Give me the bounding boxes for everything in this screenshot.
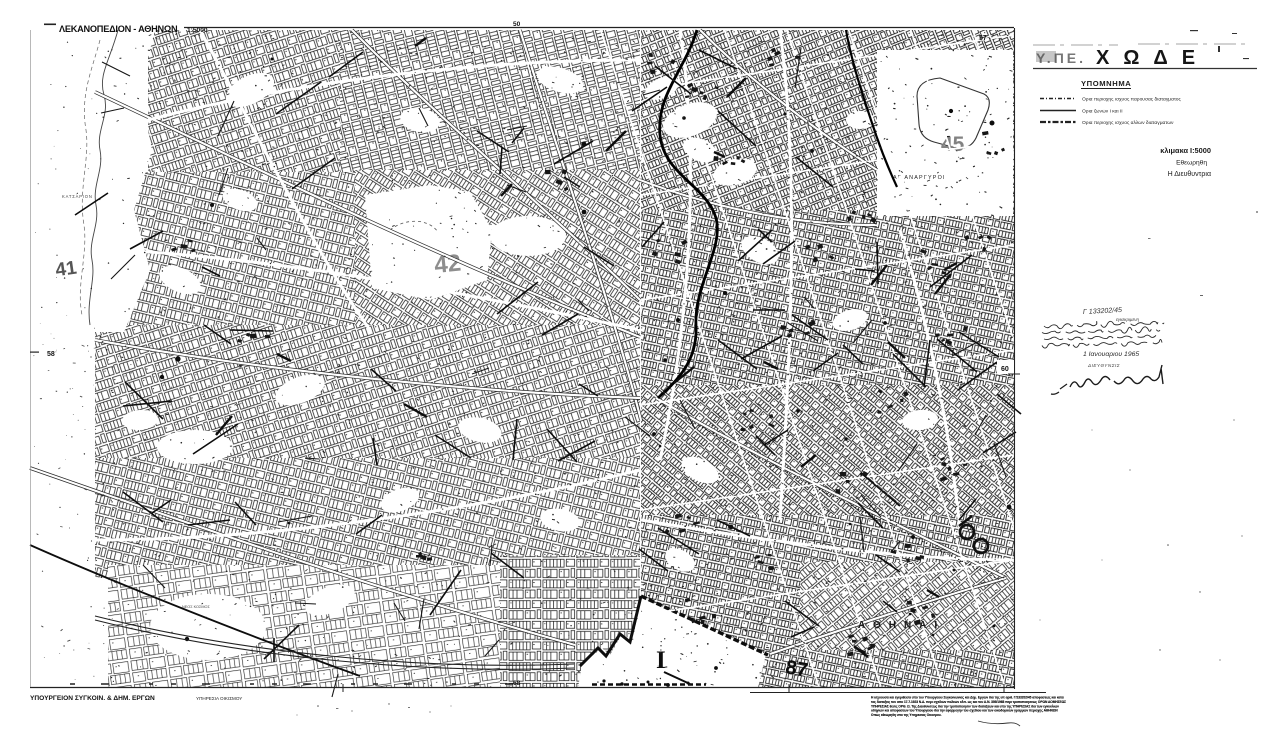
svg-text:εγκεκριμενη: εγκεκριμενη xyxy=(1116,317,1139,322)
svg-text:ΚΑΤΣΑΡΙΟΝ: ΚΑΤΣΑΡΙΟΝ xyxy=(62,194,93,199)
svg-text:τας διαταξεις του απο 17.7.192: τας διαταξεις του απο 17.7.1923 Ν.Δ. περ… xyxy=(871,700,1066,704)
svg-text:ΑΓ ΑΝΑΡΓΥΡΟΙ: ΑΓ ΑΝΑΡΓΥΡΟΙ xyxy=(893,175,946,181)
svg-text:ΔΙΕΥΘΥΝΣΙΣ: ΔΙΕΥΘΥΝΣΙΣ xyxy=(1087,363,1120,368)
svg-text:Η Διευθυντρια: Η Διευθυντρια xyxy=(1168,171,1211,178)
svg-text:Ορια περιοχης ισχυος αλλων: Ορια περιοχης ισχυος αλλων διαταγματων xyxy=(1082,120,1174,126)
svg-text:Ορια περιοχης ισχυος παρουσ: Ορια περιοχης ισχυος παρουσας διαταγματο… xyxy=(1082,97,1182,103)
svg-text:I: I xyxy=(656,647,666,674)
svg-text:68: 68 xyxy=(513,680,521,687)
svg-text:45: 45 xyxy=(941,133,965,156)
svg-text:ΥΠΟΥΡΓΕΙΟΝ ΣΥΓΚΟΙΝ. & ΔΗΜ. ΕΡΓ: ΥΠΟΥΡΓΕΙΟΝ ΣΥΓΚΟΙΝ. & ΔΗΜ. ΕΡΓΩΝ xyxy=(30,695,155,702)
svg-text:οδηγιων και αποφασεων του Υπου: οδηγιων και αποφασεων του Υπουργειου δια… xyxy=(871,709,1058,713)
svg-text:Οπως εθεωρηθη υπο της Υπηρεσια: Οπως εθεωρηθη υπο της Υπηρεσιας Οικισμου… xyxy=(871,713,942,717)
svg-text:50: 50 xyxy=(513,21,521,28)
svg-text:ΥΠΗΡΕΣΙΑΣ θεσις ΟΡΘ. Ω. Της Δι: ΥΠΗΡΕΣΙΑΣ θεσις ΟΡΘ. Ω. Της Διευθυνσεως … xyxy=(871,704,1059,708)
svg-text:58: 58 xyxy=(47,351,55,358)
svg-text:Ορια ζωνων Ι και ΙΙ: Ορια ζωνων Ι και ΙΙ xyxy=(1082,109,1123,115)
svg-text:57: 57 xyxy=(979,35,987,42)
svg-text:1 Ιανουαριου 1965: 1 Ιανουαριου 1965 xyxy=(1083,351,1139,358)
svg-text:Εθεωρηθη: Εθεωρηθη xyxy=(1176,160,1207,167)
svg-text:κλιμακα Ι:5000: κλιμακα Ι:5000 xyxy=(1160,146,1211,155)
svg-text:ΥΠΗΡΕΣΙΑ ΟΙΚΙΣΜΟΥ: ΥΠΗΡΕΣΙΑ ΟΙΚΙΣΜΟΥ xyxy=(196,696,242,701)
svg-text:41: 41 xyxy=(54,257,78,281)
svg-text:ΛΕΚΑΝΟΠΕΔΙΟΝ - ΑΘΗΝΩΝ: ΛΕΚΑΝΟΠΕΔΙΟΝ - ΑΘΗΝΩΝ xyxy=(59,24,178,34)
svg-text:ΧΩΔΕ: ΧΩΔΕ xyxy=(1096,47,1209,69)
svg-text:ΑΘΗΝΑΙ: ΑΘΗΝΑΙ xyxy=(858,620,945,631)
svg-text:ΥΠΟΜΝΗΜΑ: ΥΠΟΜΝΗΜΑ xyxy=(1081,79,1131,88)
svg-text:60: 60 xyxy=(1001,366,1009,373)
svg-text:1:5000: 1:5000 xyxy=(187,27,208,34)
svg-text:87: 87 xyxy=(784,656,810,682)
svg-text:Η ισχυουσα και εγκριθεισα υπο: Η ισχυουσα και εγκριθεισα υπο του Υπουργ… xyxy=(871,696,1064,700)
svg-text:ΝΕΟΣ ΚΟΣΜΟΣ: ΝΕΟΣ ΚΟΣΜΟΣ xyxy=(182,605,210,609)
svg-text:42: 42 xyxy=(433,249,462,279)
